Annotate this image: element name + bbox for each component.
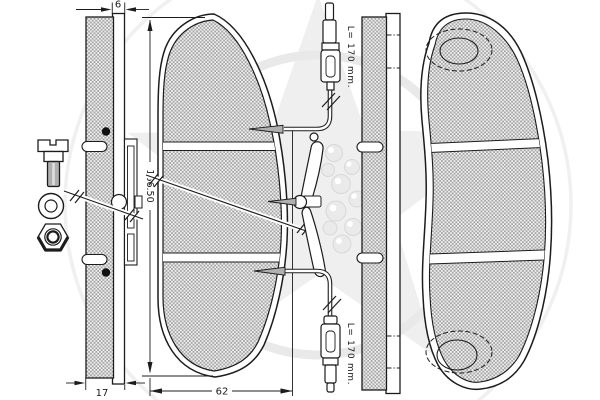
washer-icon [39,194,64,219]
sensor-hole-dot [102,127,110,135]
friction-material-left [86,17,114,378]
nut-icon [38,224,68,250]
dimension-plate-thickness: 6 [76,0,149,14]
friction-groove [152,142,294,151]
clip-hook [310,133,318,141]
friction-surface [163,20,281,371]
total-thickness-value: 17 [96,388,109,399]
friction-material-right [362,17,387,390]
technical-drawing-canvas: 6 17 166.50 62 [0,0,600,400]
friction-slot [82,255,107,265]
sensor-hole-dot [102,268,110,276]
plate-thickness-value: 6 [115,0,121,11]
pad-width-value: 62 [216,387,229,398]
pad-front-view [152,14,294,377]
friction-slot [357,253,383,263]
friction-groove [152,253,294,262]
pad-side-view-right [357,14,400,394]
bolt-icon [38,140,68,187]
sensor-connector [321,316,340,392]
dimension-total-thickness: 17 [66,377,145,399]
friction-slot [82,142,107,152]
sensor-bottom-length-label: L= 170 mm. [345,323,355,386]
sensor-top-length-label: L= 170 mm. [345,26,355,89]
brake-pad-drawing: 6 17 166.50 62 [0,0,600,400]
friction-slot [357,142,383,152]
